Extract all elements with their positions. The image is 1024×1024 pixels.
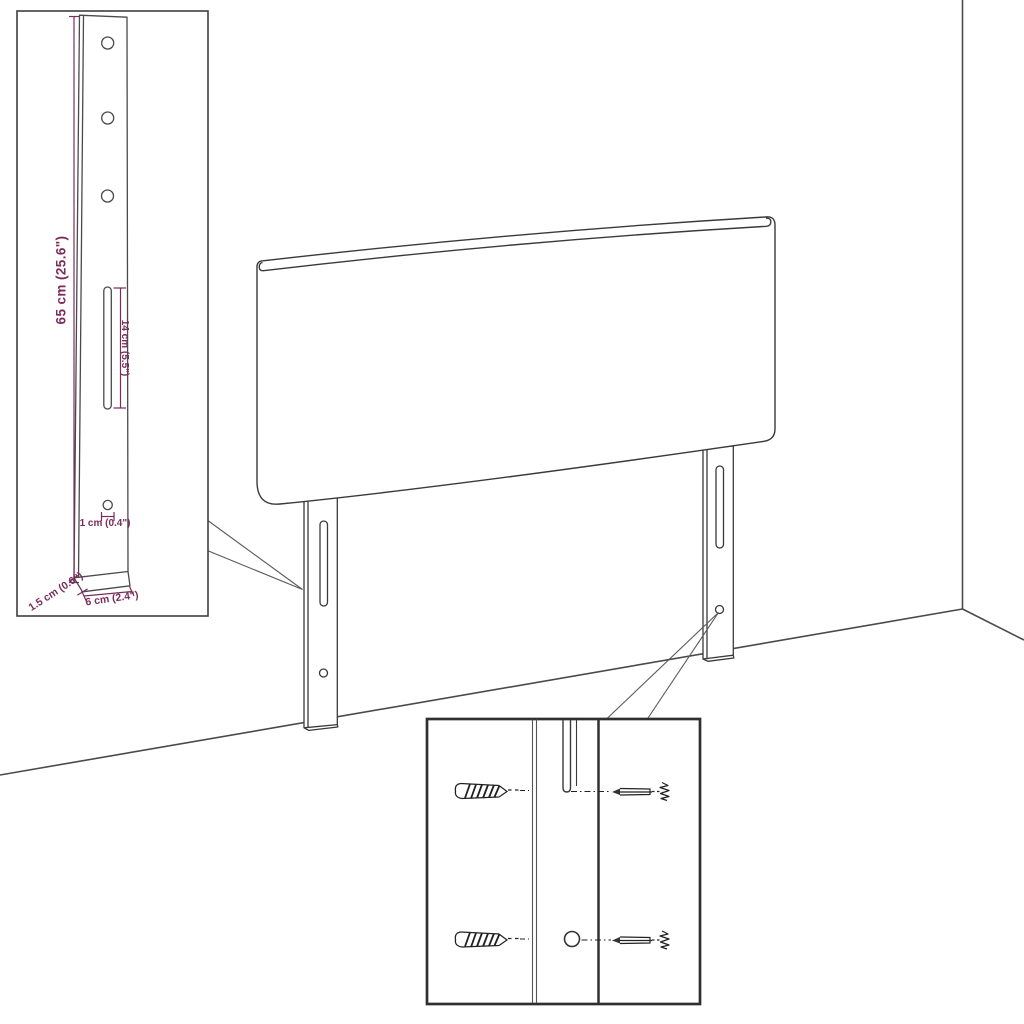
callout-lines — [209, 521, 719, 720]
dimension-label-height: 65 cm (25.6") — [54, 236, 68, 325]
bracket-front-view — [74, 15, 130, 592]
callout-bracket-to-leg-lower — [209, 551, 303, 590]
leg-left-outline — [304, 496, 338, 730]
floor-line-right — [963, 609, 1024, 640]
product-diagram: 65 cm (25.6") 14 cm (5.5") 1 cm (0.4") 1… — [0, 0, 1024, 1024]
headboard-leg-left — [304, 496, 338, 730]
headboard-outline — [257, 217, 775, 504]
headboard-panel — [257, 217, 775, 504]
callout-hole-to-inset-right — [647, 613, 719, 720]
screw-detail-inset — [427, 719, 700, 1004]
callout-hole-to-inset-left — [606, 613, 719, 720]
dimension-label-hole: 1 cm (0.4") — [80, 519, 131, 529]
dimension-label-slot: 14 cm (5.5") — [119, 320, 129, 376]
diagram-line-art — [0, 0, 1024, 1024]
callout-bracket-to-leg-upper — [209, 521, 303, 590]
